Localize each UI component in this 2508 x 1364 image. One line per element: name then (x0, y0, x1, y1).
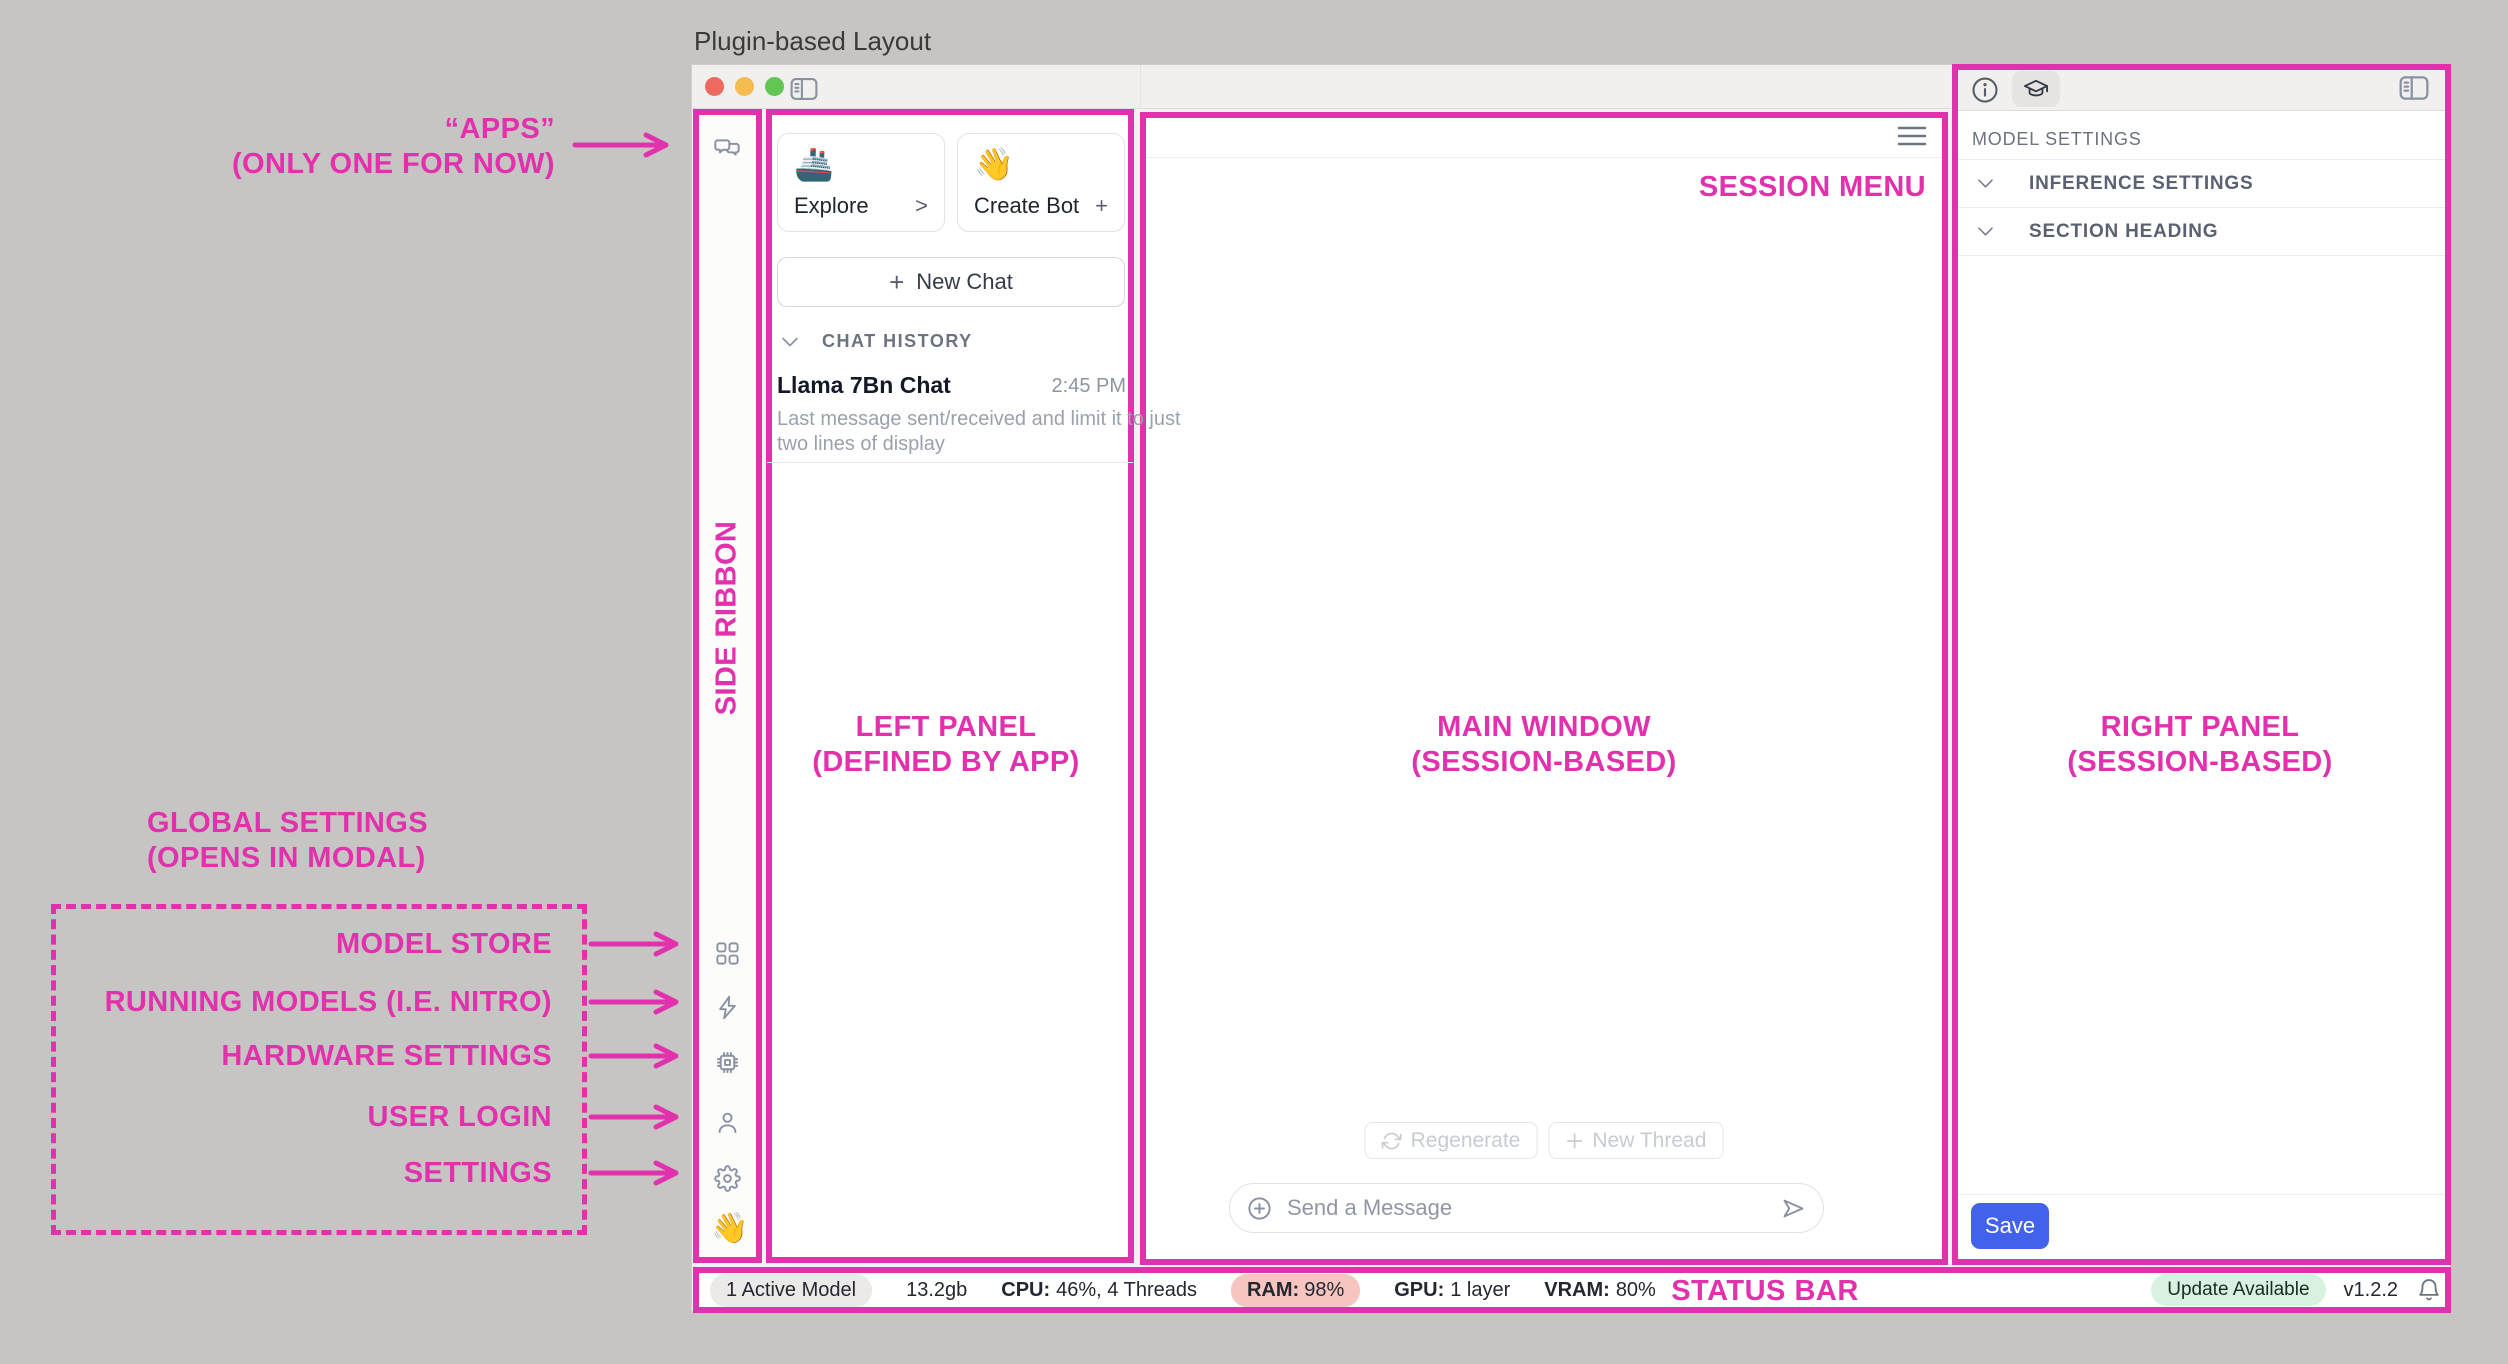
titlebar (692, 65, 1951, 109)
thread-actions: Regenerate New Thread (1365, 1122, 1724, 1159)
attach-plus-circle-icon[interactable] (1246, 1195, 1273, 1222)
design-canvas: Plugin-based Layout 👋 🚢 Explore > (0, 0, 2508, 1364)
divider (767, 462, 1133, 463)
annotation-arrow (588, 1043, 686, 1069)
window-controls (705, 77, 784, 96)
message-input[interactable] (1287, 1195, 1766, 1221)
plus-glyph: + (1095, 193, 1108, 219)
create-bot-card[interactable]: 👋 Create Bot + (957, 133, 1125, 232)
inference-settings-section[interactable]: INFERENCE SETTINGS (1958, 160, 2445, 207)
user-login-annotation: USER LOGIN (368, 1100, 552, 1135)
create-bot-card-label: Create Bot (974, 193, 1079, 219)
global-settings-annotation: GLOBAL SETTINGS (OPENS IN MODAL) (147, 806, 428, 876)
chevron-down-icon (1976, 225, 1995, 238)
annotation-arrow (588, 931, 686, 957)
left-panel-annotation: LEFT PANEL (DEFINED BY APP) (812, 710, 1079, 780)
section-heading-label: SECTION HEADING (2029, 221, 2218, 243)
graduation-cap-icon (2022, 75, 2050, 103)
annotation-arrow (588, 1160, 686, 1186)
main-window-annotation: MAIN WINDOW (SESSION-BASED) (1411, 710, 1676, 780)
chat-history-collapse-header[interactable]: CHAT HISTORY (780, 331, 973, 352)
send-message-icon[interactable] (1780, 1195, 1807, 1222)
hardware-settings-annotation: HARDWARE SETTINGS (221, 1039, 552, 1074)
vram-label: VRAM: (1544, 1279, 1610, 1302)
chevron-down-icon (780, 335, 800, 349)
update-available-badge[interactable]: Update Available (2151, 1274, 2325, 1306)
inference-settings-label: INFERENCE SETTINGS (2029, 173, 2253, 195)
left-sidebar-toggle-icon[interactable] (789, 76, 819, 107)
divider (1958, 255, 2445, 256)
model-store-annotation: MODEL STORE (336, 927, 552, 962)
memory-usage: 13.2gb (906, 1279, 967, 1302)
apps-annotation-arrow (572, 131, 676, 159)
ship-emoji-icon: 🚢 (794, 146, 928, 182)
save-button[interactable]: Save (1971, 1203, 2049, 1249)
running-models-annotation: RUNNING MODELS (I.E. NITRO) (105, 985, 552, 1020)
user-login-icon[interactable] (713, 1108, 741, 1136)
main-window-panel (1140, 112, 1948, 1265)
chat-history-label: CHAT HISTORY (822, 331, 973, 352)
annotation-arrow (588, 989, 686, 1015)
refresh-icon (1382, 1131, 1402, 1151)
model-settings-heading: MODEL SETTINGS (1972, 129, 2142, 150)
chevron-right-glyph: > (915, 193, 928, 219)
chat-item-preview: Last message sent/received and limit it … (777, 408, 1181, 431)
regenerate-label: Regenerate (1411, 1129, 1521, 1153)
status-bar-metrics: 1 Active Model 13.2gb CPU:46%, 4 Threads… (710, 1273, 1656, 1307)
running-models-icon[interactable] (713, 993, 741, 1021)
notification-bell-icon[interactable] (2416, 1277, 2442, 1303)
divider (1958, 1194, 2445, 1195)
page-title: Plugin-based Layout (694, 26, 931, 57)
chat-item-title[interactable]: Llama 7Bn Chat (777, 372, 951, 399)
message-input-container (1229, 1183, 1824, 1233)
minimize-window-button[interactable] (735, 77, 754, 96)
chat-item-time: 2:45 PM (1000, 375, 1126, 398)
vram-value: 80% (1616, 1279, 1656, 1302)
new-thread-button[interactable]: New Thread (1548, 1122, 1723, 1159)
session-menu-annotation: SESSION MENU (1699, 170, 1926, 205)
side-ribbon-annotation: SIDE RIBBON (710, 521, 745, 716)
wave-emoji-icon: 👋 (974, 146, 1108, 182)
titlebar-divider (1140, 65, 1141, 109)
explore-card-label: Explore (794, 193, 869, 219)
main-header-divider (1146, 157, 1942, 158)
chevron-down-icon (1976, 177, 1995, 190)
chat-item-preview: two lines of display (777, 433, 945, 456)
apps-annotation: “APPS” (ONLY ONE FOR NOW) (232, 112, 555, 182)
maximize-window-button[interactable] (765, 77, 784, 96)
ram-usage-badge: RAM:98% (1231, 1274, 1360, 1307)
status-bar-annotation: STATUS BAR (1671, 1275, 1859, 1308)
gpu-value: 1 layer (1450, 1279, 1510, 1302)
status-bar-right: Update Available v1.2.2 (2151, 1273, 2442, 1307)
settings-annotation: SETTINGS (404, 1156, 552, 1191)
cpu-label: CPU: (1001, 1279, 1050, 1302)
settings-gear-icon[interactable] (713, 1164, 741, 1192)
gpu-label: GPU: (1394, 1279, 1444, 1302)
section-heading-section[interactable]: SECTION HEADING (1958, 208, 2445, 255)
model-store-icon[interactable] (713, 939, 741, 967)
model-settings-tab-selected[interactable] (2012, 71, 2060, 107)
app-version: v1.2.2 (2344, 1279, 2398, 1302)
new-thread-label: New Thread (1592, 1129, 1706, 1153)
wave-hand-icon[interactable]: 👋 (711, 1214, 748, 1244)
right-panel-annotation: RIGHT PANEL (SESSION-BASED) (2067, 710, 2332, 780)
explore-card[interactable]: 🚢 Explore > (777, 133, 945, 232)
plus-icon: + (889, 267, 904, 298)
new-chat-label: New Chat (916, 269, 1013, 295)
new-chat-button[interactable]: + New Chat (777, 257, 1125, 307)
session-menu-icon[interactable] (1896, 124, 1928, 153)
active-models-badge: 1 Active Model (710, 1274, 872, 1307)
close-window-button[interactable] (705, 77, 724, 96)
right-sidebar-toggle-icon[interactable] (2398, 74, 2430, 107)
chat-app-icon[interactable] (713, 134, 741, 162)
regenerate-button[interactable]: Regenerate (1365, 1122, 1538, 1159)
divider (1958, 110, 2445, 111)
info-tab-icon[interactable] (1970, 75, 2000, 110)
plus-icon (1565, 1132, 1583, 1150)
annotation-arrow (588, 1104, 686, 1130)
hardware-settings-icon[interactable] (713, 1048, 741, 1076)
cpu-value: 46%, 4 Threads (1056, 1279, 1197, 1302)
